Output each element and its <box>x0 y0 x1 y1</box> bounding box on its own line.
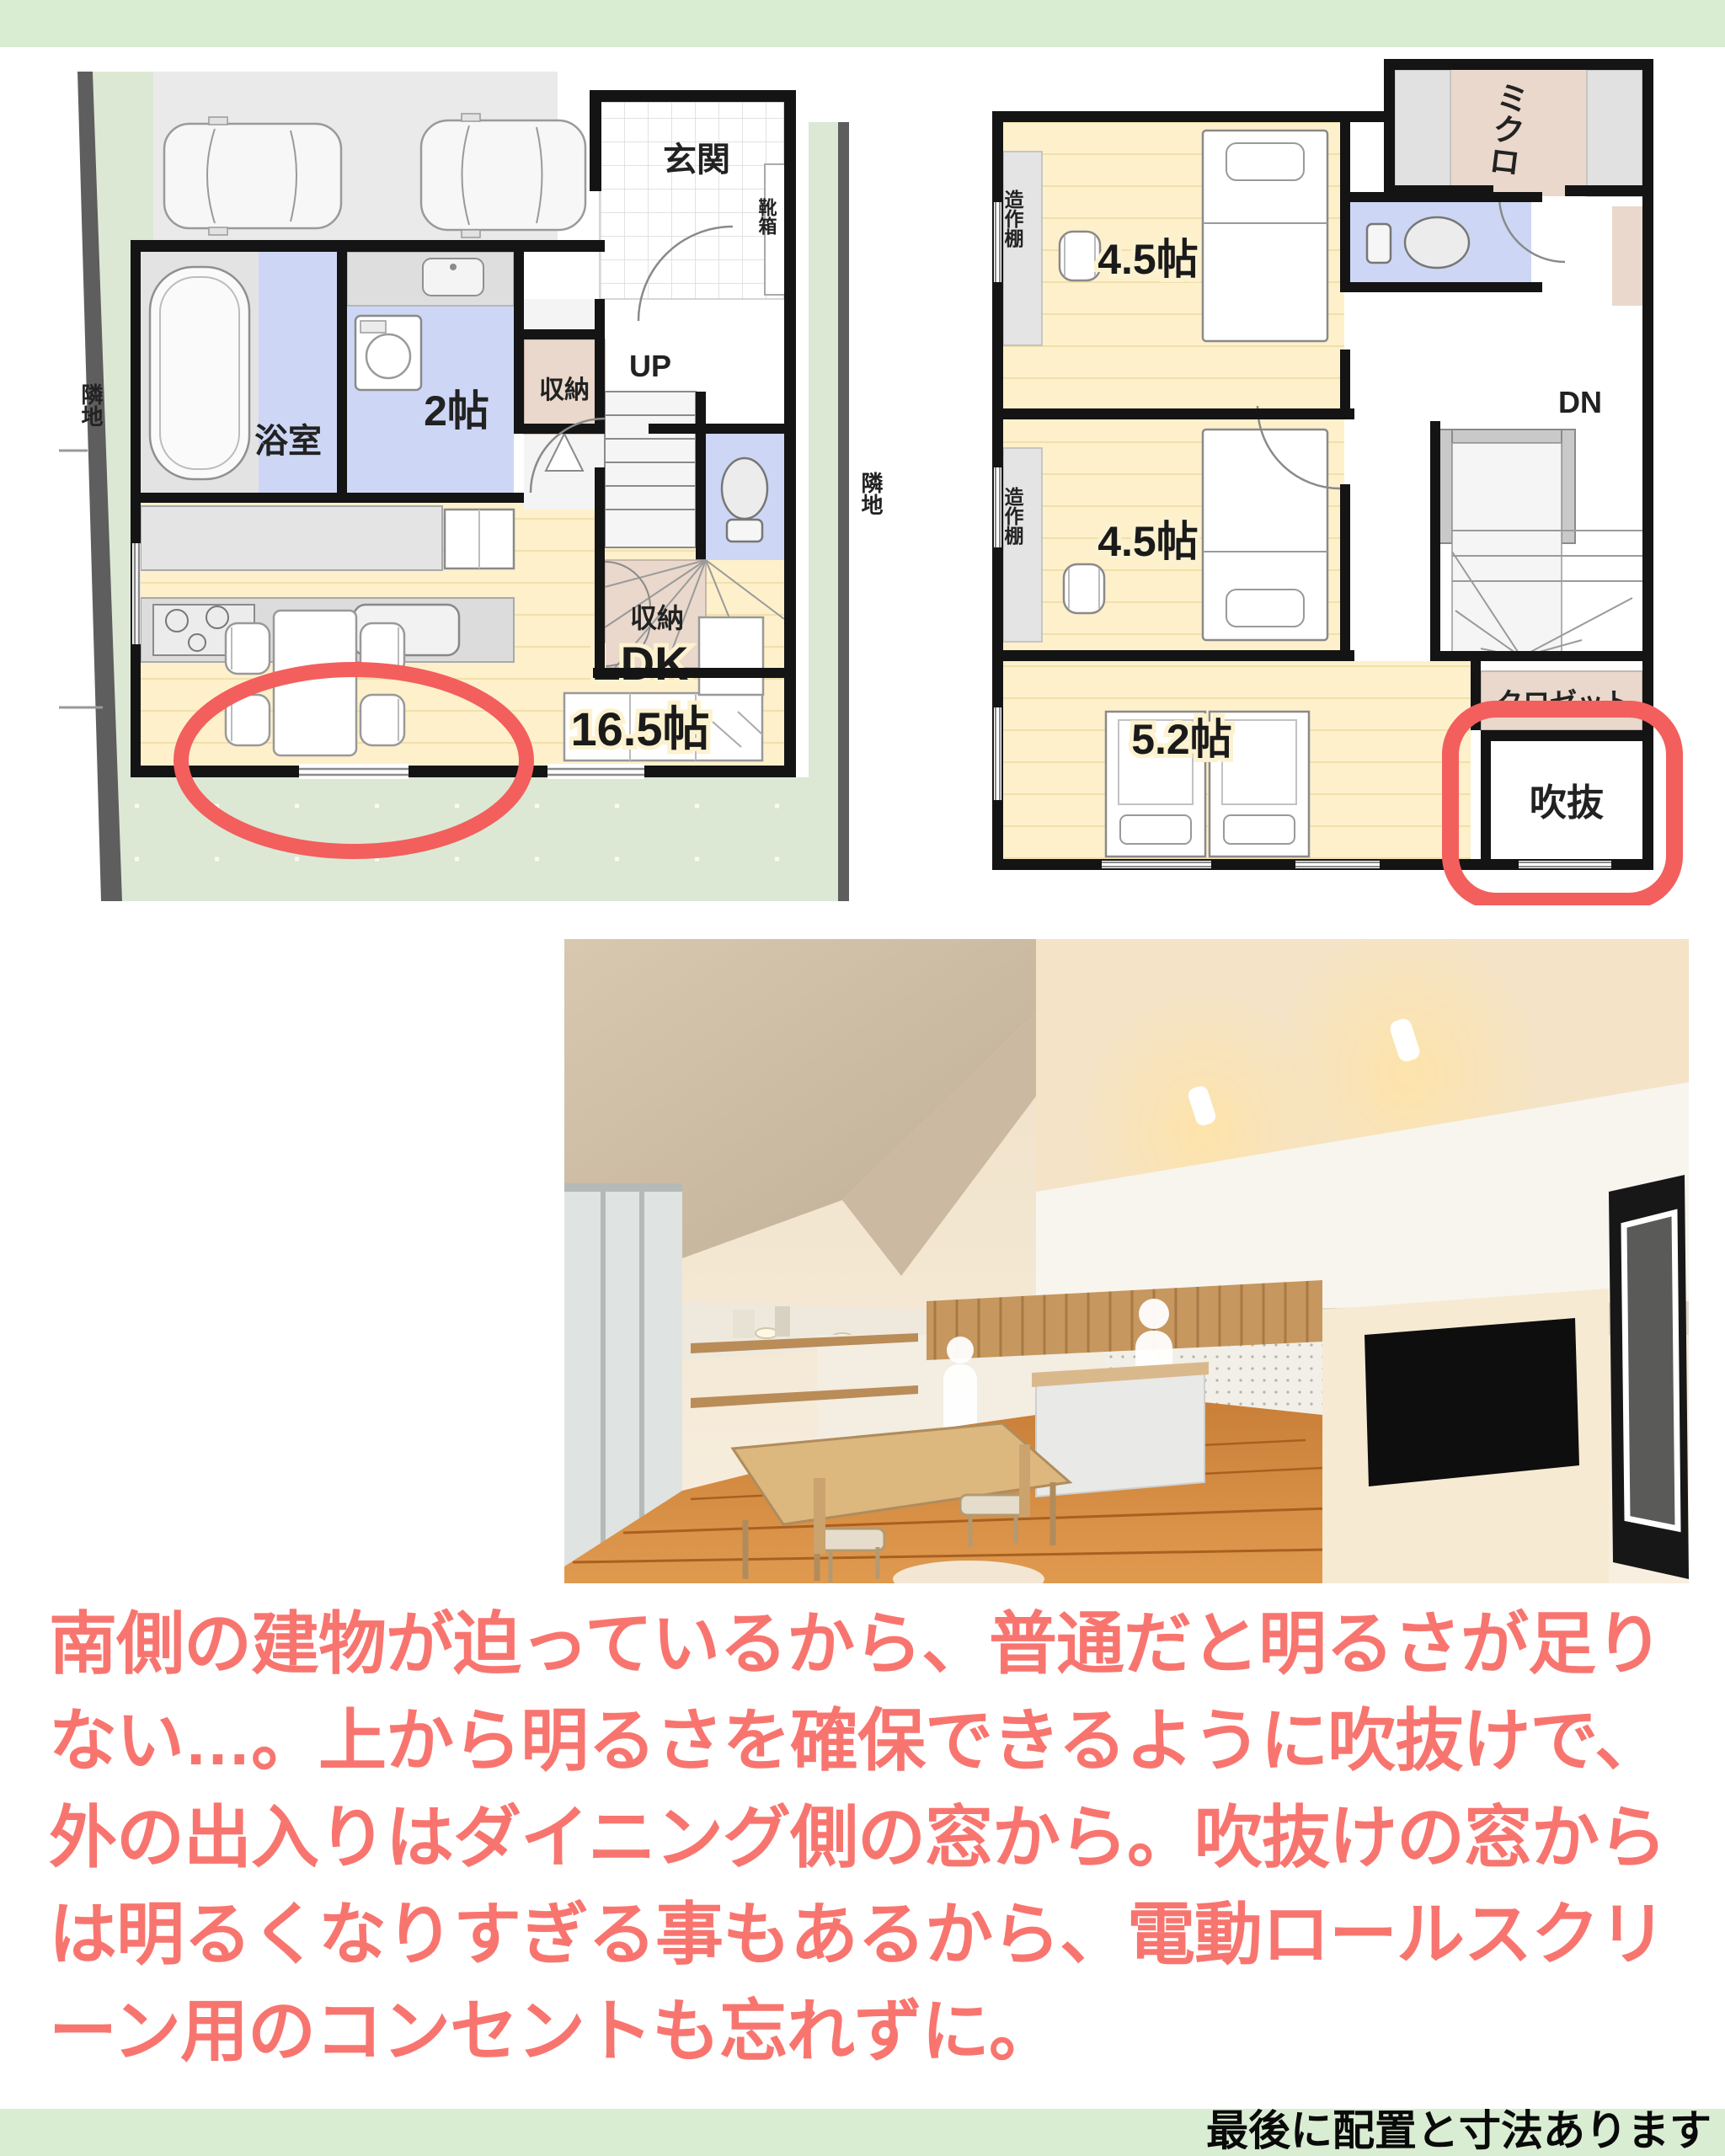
toilet-icon <box>722 458 767 542</box>
site-boundary-line-right <box>838 122 849 901</box>
note-line: 南側の建物が迫っているから、普通だと明るさが足り <box>49 1597 1683 1694</box>
storage-upper-label: 収納 <box>539 376 590 404</box>
note-line: ない…。上から明るさを確保できるように吹抜けで、 <box>49 1694 1683 1790</box>
toilet-icon <box>1367 217 1469 268</box>
shoe-box-label: 靴箱 <box>756 198 777 235</box>
laundry-room: 2帖 <box>347 252 514 493</box>
bedroom-lower: 5.2帖 <box>1003 661 1471 859</box>
ldk-label: LDK <box>591 637 688 690</box>
desk-chair-icon <box>1060 232 1100 280</box>
tv-screen <box>1365 1318 1579 1486</box>
interior-render <box>564 939 1689 1583</box>
chair-icon <box>360 695 404 745</box>
bedroom-middle-label: 4.5帖 <box>1097 518 1199 565</box>
void-area: 吹抜 <box>1491 731 1642 859</box>
bedroom-upper-label: 4.5帖 <box>1097 236 1199 283</box>
car-icon <box>421 114 585 237</box>
site-label-2f: 隣地 <box>856 472 887 515</box>
void-label: 吹抜 <box>1530 782 1604 824</box>
hall-closet-strip <box>1612 206 1642 306</box>
bed-icon <box>1203 131 1327 341</box>
built-in-shelf-upper-label: 造作棚 <box>1001 189 1024 248</box>
note-line: ーン用のコンセントも忘れずに。 <box>49 1984 1683 2081</box>
bedroom-middle: 造作棚 4.5帖 <box>1001 406 1344 654</box>
floor-plan-2f: ミクロ 造作棚 4.5帖 <box>891 59 1683 905</box>
built-in-shelf-upper <box>1003 152 1042 345</box>
family-closet: ミクロ <box>1395 70 1642 196</box>
ldk-size-label: 16.5帖 <box>571 702 710 755</box>
parking-area <box>153 72 585 240</box>
entrance-label: 玄関 <box>663 141 730 179</box>
top-green-bar <box>0 0 1725 47</box>
page: 隣地 <box>0 0 1725 2156</box>
stairs-down-label: DN <box>1558 385 1602 419</box>
note-text: 南側の建物が迫っているから、普通だと明るさが足り ない…。上から明るさを確保でき… <box>49 1597 1683 2081</box>
desk-chair-icon <box>1064 564 1104 613</box>
bathroom-room: 浴室 <box>141 252 337 493</box>
stairs-up-label: UP <box>629 349 671 383</box>
toilet-room-2f <box>1350 202 1531 282</box>
entrance-area: 玄関 靴箱 <box>590 90 796 321</box>
site-label-1f: 隣地 <box>78 383 104 427</box>
laundry-label: 2帖 <box>424 387 489 435</box>
stairs-up: UP <box>605 349 696 547</box>
note-line: 外の出入りはダイニング側の窓から。吹抜けの窓から <box>49 1790 1683 1887</box>
bathroom-label: 浴室 <box>254 423 322 460</box>
bedroom-upper: 造作棚 4.5帖 <box>1001 122 1344 408</box>
built-in-shelf-lower <box>1003 448 1042 642</box>
storage-under-stairs-label: 収納 <box>630 603 684 633</box>
footer-green-bar: 最後に配置と寸法あります <box>0 2109 1725 2156</box>
bed-icon <box>1203 430 1327 640</box>
car-icon <box>164 117 341 235</box>
bedroom-lower-label: 5.2帖 <box>1131 716 1232 763</box>
built-in-shelf-lower-label: 造作棚 <box>1001 487 1024 546</box>
chair-icon <box>226 623 270 674</box>
downlight-icon <box>756 1328 777 1338</box>
window-inner <box>1624 1213 1678 1529</box>
floor-plan-1f: 隣地 <box>59 72 859 905</box>
washing-machine-icon <box>355 316 421 390</box>
note-line: は明るくなりすぎる事もあるから、電動ロールスクリ <box>49 1887 1683 1984</box>
bathtub-icon <box>150 267 249 479</box>
footer-text: 最後に配置と寸法あります <box>1206 2097 1712 2156</box>
